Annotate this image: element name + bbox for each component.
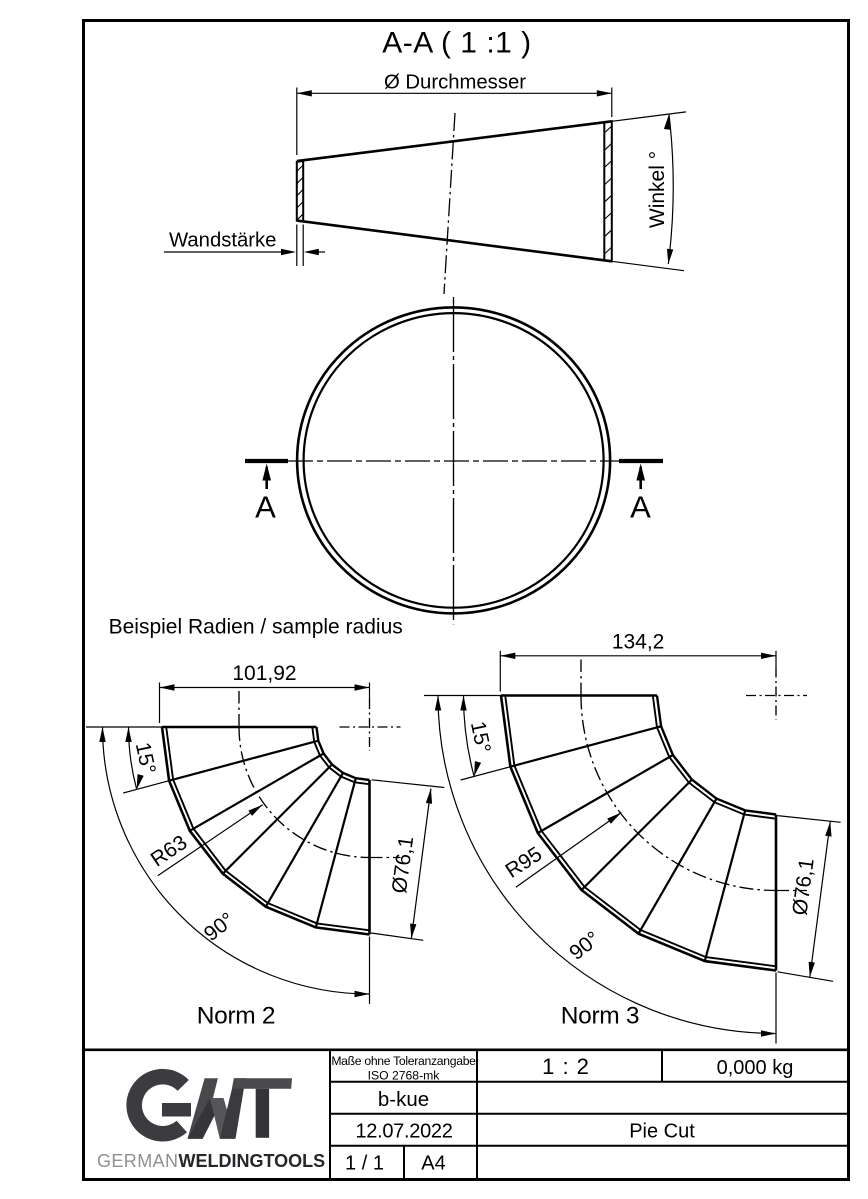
svg-text:101,92: 101,92 xyxy=(232,662,296,685)
svg-text:12.07.2022: 12.07.2022 xyxy=(355,1121,452,1143)
svg-text:134,2: 134,2 xyxy=(612,631,665,654)
svg-text:Wandstärke: Wandstärke xyxy=(169,230,276,252)
svg-text:A: A xyxy=(255,490,276,525)
svg-text:A: A xyxy=(630,490,651,525)
svg-text:0,000 kg: 0,000 kg xyxy=(717,1057,794,1079)
svg-text:A-A ( 1 :1 ): A-A ( 1 :1 ) xyxy=(382,27,531,60)
svg-text:ISO 2768-mk: ISO 2768-mk xyxy=(368,1069,441,1083)
svg-text:b-kue: b-kue xyxy=(378,1088,429,1111)
svg-text:Winkel °: Winkel ° xyxy=(646,151,669,228)
svg-text:Norm 3: Norm 3 xyxy=(561,1003,640,1030)
svg-text:1 : 2: 1 : 2 xyxy=(542,1054,590,1079)
svg-text:Norm 2: Norm 2 xyxy=(197,1003,276,1030)
svg-text:Beispiel Radien / sample radiu: Beispiel Radien / sample radius xyxy=(109,616,403,639)
svg-text:GERMAN: GERMAN xyxy=(97,1151,178,1171)
svg-text:1 / 1: 1 / 1 xyxy=(345,1153,384,1175)
svg-text:Ø Durchmesser: Ø Durchmesser xyxy=(384,72,526,94)
svg-text:Maße ohne Toleranzangabe: Maße ohne Toleranzangabe xyxy=(331,1054,476,1068)
svg-text:Pie Cut: Pie Cut xyxy=(629,1121,695,1143)
svg-text:WELDINGTOOLS: WELDINGTOOLS xyxy=(179,1151,326,1171)
svg-text:A4: A4 xyxy=(421,1153,445,1175)
